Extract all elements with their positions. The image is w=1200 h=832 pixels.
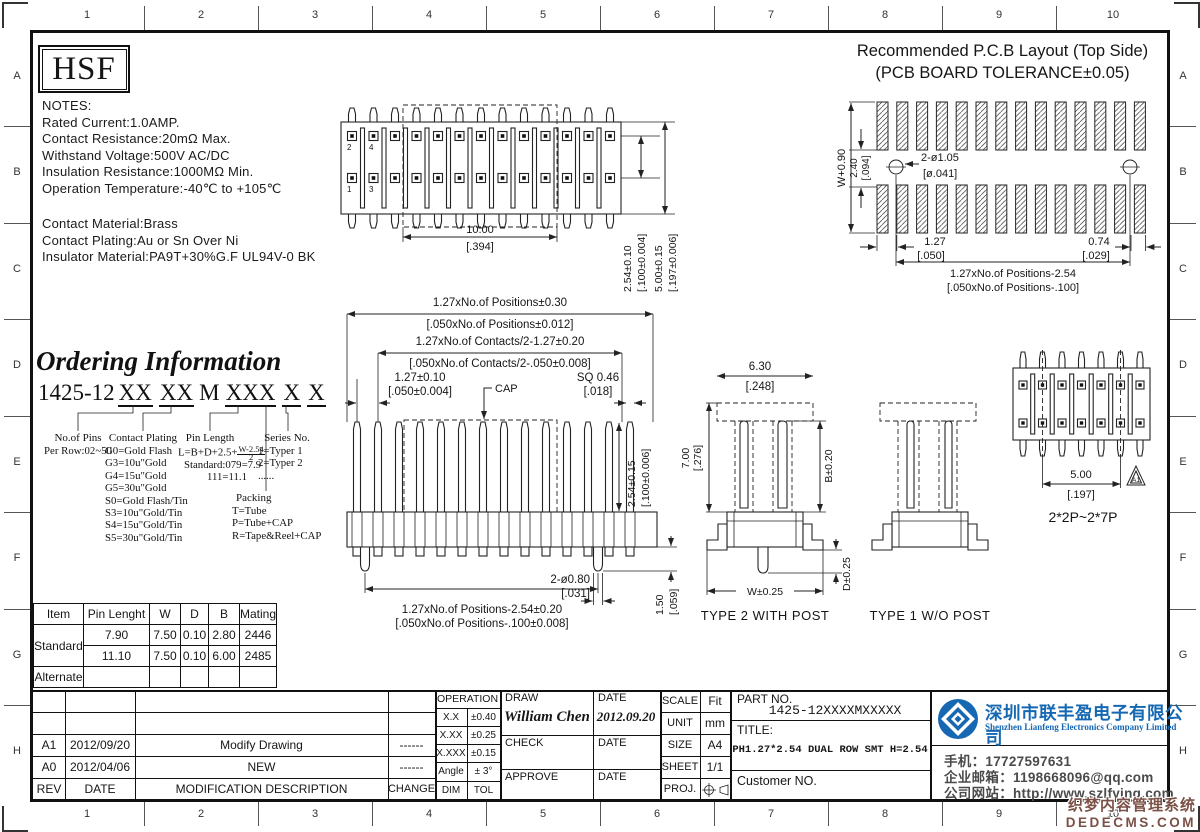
ordering-title: Ordering Information: [36, 346, 281, 377]
grid-row-label: F: [8, 552, 26, 564]
fv-cap-leader: [484, 388, 492, 419]
fv-dim-150-in: [.059]: [668, 589, 680, 615]
packing-option: P=Tube+CAP: [232, 517, 321, 529]
series-option: 1=Typer 1: [258, 445, 303, 457]
unit-value: mm: [700, 712, 730, 734]
t2-foot-left: [707, 524, 727, 550]
grid-row-label: G: [8, 649, 26, 661]
fv-dim-l1-in: [.050xNo.of Positions±0.012]: [427, 319, 574, 331]
grid-row-label: E: [1174, 456, 1192, 468]
part-group-pins: XX: [118, 380, 153, 407]
company-name-en: Shenzhen Lianfeng Electronics Company Li…: [985, 722, 1176, 732]
grid-row-label: C: [8, 263, 26, 275]
part-no-value: 1425-12XXXXMXXXXX: [745, 702, 925, 718]
note-line: Operation Temperature:-40℃ to +105℃: [42, 181, 281, 198]
grid-row-label: D: [8, 359, 26, 371]
spec-cell: [181, 667, 209, 688]
fv-dim-l2-in: [.050xNo.of Contacts/2-.050±0.008]: [409, 358, 590, 370]
top-view-dim-500: 5.00±0.15: [653, 245, 665, 292]
note-line: Insulation Resistance:1000MΩ Min.: [42, 164, 281, 181]
pcb-dim-240-in: [.094]: [861, 155, 872, 180]
title-label: TITLE:: [737, 723, 773, 737]
operation-header: OPERATION: [435, 690, 500, 708]
part-group-plating: XX: [159, 380, 194, 407]
proj-label: PROJ.: [660, 778, 700, 800]
tol-dim: X.XXX: [435, 744, 467, 762]
hsf-logo-text: HSF: [52, 51, 116, 88]
rev-id: A0: [33, 756, 65, 778]
grid-col-label: 1: [67, 9, 107, 21]
note-line: Contact Plating:Au or Sn Over Ni: [42, 233, 316, 250]
rev-change: ------: [388, 756, 435, 778]
grid-col-label: 1: [67, 808, 107, 820]
notes-block: NOTES: Rated Current:1.0AMP. Contact Res…: [42, 98, 281, 198]
sv-range-label: 2*2P~2*7P: [1049, 509, 1118, 525]
check-date-label: DATE: [598, 737, 627, 749]
grid-col-label: 10: [1093, 9, 1133, 21]
type1-label: TYPE 1 W/O POST: [870, 608, 991, 623]
grid-col-label: 8: [865, 9, 905, 21]
fv-post-left: [361, 547, 370, 571]
spec-row-label: Alternate: [34, 667, 84, 688]
spec-table: Item Pin Lenght W D B Mating Standard 7.…: [33, 603, 277, 688]
formula-prefix: L=B+D+2.5+: [178, 446, 237, 458]
ordering-pinlength-standard: Standard:079=7.9: [184, 459, 261, 471]
note-line: Contact Material:Brass: [42, 216, 316, 233]
check-label: CHECK: [505, 737, 544, 749]
spec-cell: 2446: [240, 625, 277, 646]
pin-number-1: 1: [347, 185, 352, 194]
customer-no-label: Customer NO.: [737, 774, 817, 788]
plating-option: G4=15u"Gold: [105, 470, 188, 482]
ordering-pinlength-111: 111=11.1: [207, 471, 247, 483]
part-group-m: M: [199, 380, 219, 405]
top-view-drawing: 2 4 1 3 10.00 [.394] 2.54±0.10 [.100±0.0…: [335, 92, 685, 297]
t1-cap-outline: [880, 403, 976, 512]
grid-row-label: B: [1174, 166, 1192, 178]
ordering-series-list: 1=Typer 1 2=Typer 2 ......: [258, 445, 303, 482]
spec-cell: 11.10: [84, 646, 150, 667]
fv-dim-hole-in: [.031]: [561, 588, 590, 600]
datasheet-page: 1 2 3 4 5 6 7 8 9 10 1 2 3 4 5 6 7 8 9 1…: [0, 0, 1200, 832]
grid-row-label: H: [8, 745, 26, 757]
ordering-packing-list: T=Tube P=Tube+CAP R=Tape&Reel+CAP: [232, 505, 321, 542]
tol-dim: Angle: [435, 762, 467, 781]
unit-label: UNIT: [660, 712, 700, 734]
part-group-length: XXX: [225, 380, 277, 407]
spec-cell: [84, 667, 150, 688]
note-line: Withstand Voltage:500V AC/DC: [42, 148, 281, 165]
t2-dim-630-in: [.248]: [746, 381, 775, 393]
fv-cap-label: CAP: [495, 383, 518, 395]
plating-option: G0=Gold Flash: [105, 445, 188, 457]
pcb-dim-edge: 0.74: [1088, 236, 1109, 248]
pcb-layout-subtitle: (PCB BOARD TOLERANCE±0.05): [840, 63, 1165, 83]
series-option: 2=Typer 2: [258, 457, 303, 469]
pcb-pad-row-bottom: [877, 185, 1145, 233]
fv-dim-hole: 2-ø0.80: [550, 574, 590, 586]
grid-col-label: 2: [181, 9, 221, 21]
grid-col-label: 3: [295, 808, 335, 820]
t2-dim-630: 6.30: [749, 361, 771, 373]
sv-dim-500: 5.00: [1070, 469, 1091, 481]
rev-description: NEW: [135, 756, 388, 778]
fv-dim-254-in: [.100±0.006]: [640, 449, 652, 507]
fv-dim-sq-in: [.018]: [584, 386, 613, 398]
plating-option: S0=Gold Flash/Tin: [105, 495, 188, 507]
company-logo-icon: [936, 697, 980, 741]
fv-dim-l3-in: [.050±0.004]: [388, 386, 452, 398]
pcb-dim-w: W+0.90: [836, 149, 848, 187]
pin-number-3: 3: [369, 185, 374, 194]
pcb-pad-row-top: [877, 102, 1145, 150]
ordering-plating-list: G0=Gold Flash G3=10u"Gold G4=15u"Gold G5…: [105, 445, 188, 544]
draw-date-value: 2012.09.20: [594, 703, 658, 731]
type1-drawing: TYPE 1 W/O POST: [865, 358, 1025, 628]
ordering-series-title: Series No.: [252, 432, 322, 444]
rev-header-change: CHANGE: [388, 778, 435, 800]
spec-cell: 0.10: [181, 625, 209, 646]
pcb-dim-pitch-in: [.050]: [917, 250, 945, 262]
grid-col-label: 3: [295, 9, 335, 21]
grid-col-label: 7: [751, 9, 791, 21]
t2-dim-700-in: [.276]: [692, 445, 704, 471]
fv-body: [347, 512, 657, 547]
grid-col-label: 5: [523, 9, 563, 21]
spec-cell: 0.10: [181, 646, 209, 667]
spec-header-cell: D: [181, 604, 209, 625]
t2-dim-w: W±0.25: [747, 586, 783, 598]
watermark-line2: DEDECMS.COM: [1000, 815, 1196, 830]
spec-cell: 7.90: [84, 625, 150, 646]
grid-row-label: A: [1174, 70, 1192, 82]
fv-smt-pads: [353, 547, 634, 556]
material-notes-block: Contact Material:Brass Contact Plating:A…: [42, 216, 316, 266]
corner-mark: [2, 2, 28, 28]
grid-col-label: 8: [865, 808, 905, 820]
approve-label: APPROVE: [505, 771, 558, 783]
ordering-part-format: 1425-12XXXXMXXXXX: [38, 380, 329, 406]
sheet-label: SHEET: [660, 756, 700, 778]
pcb-dim-holes: 2-ø1.05: [921, 152, 959, 164]
rev-id: A1: [33, 734, 65, 756]
part-group-series: X: [307, 380, 326, 407]
tol-val: ±0.40: [467, 708, 500, 726]
grid-row-label: G: [1174, 649, 1192, 661]
t1-body: [892, 512, 968, 547]
draw-signature: William Chen: [503, 703, 591, 731]
fv-dim-l2: 1.27xNo.of Contacts/2-1.27±0.20: [416, 336, 585, 348]
fv-dim-b1: 1.27xNo.of Positions-2.54±0.20: [402, 604, 562, 616]
grid-row-label: E: [8, 456, 26, 468]
pcb-layout-title: Recommended P.C.B Layout (Top Side): [840, 41, 1165, 61]
pcb-dim-edge-in: [.029]: [1082, 250, 1110, 262]
watermark: 织梦内容管理系统 DEDECMS.COM: [1000, 794, 1196, 830]
third-angle-projection-icon: [701, 781, 731, 799]
grid-col-label: 7: [751, 808, 791, 820]
spec-cell: [209, 667, 240, 688]
grid-col-label: 2: [181, 808, 221, 820]
scale-value: Fit: [700, 690, 730, 712]
rev-header-desc: MODIFICATION DESCRIPTION: [135, 778, 388, 800]
size-value: A4: [700, 734, 730, 756]
grid-row-label: D: [1174, 359, 1192, 371]
hsf-logo: HSF: [38, 45, 130, 93]
fv-post-right: [594, 547, 603, 571]
spec-header-cell: B: [209, 604, 240, 625]
note-line: Insulator Material:PA9T+30%G.F UL94V-0 B…: [42, 249, 316, 266]
grid-col-label: 9: [979, 9, 1019, 21]
t2-pins: [740, 421, 787, 508]
grid-col-label: 6: [637, 9, 677, 21]
spec-header-cell: Item: [34, 604, 84, 625]
spec-row-label: Standard: [34, 625, 84, 667]
t1-pins: [907, 421, 952, 508]
note-line: NOTES:: [42, 98, 281, 115]
spec-cell: [240, 667, 277, 688]
t2-dim-lines: [706, 403, 842, 595]
spec-cell: 2485: [240, 646, 277, 667]
title-value: PH1.27*2.54 DUAL ROW SMT H=2.54: [731, 742, 929, 758]
t2-dim-d: D±0.25: [841, 557, 853, 591]
top-view-dim-254: 2.54±0.10: [622, 245, 634, 292]
series-option: ......: [258, 470, 303, 482]
t1-foot-left: [872, 524, 892, 550]
small-top-view-drawing: 5.00 [.197] A1 2*2P~2*7P: [1005, 328, 1175, 540]
plating-option: S4=15u"Gold/Tin: [105, 519, 188, 531]
plating-option: G5=30u"Gold: [105, 482, 188, 494]
spec-cell: 2.80: [209, 625, 240, 646]
t2-cap-outline: [717, 403, 813, 512]
t2-dim-700: 7.00: [680, 448, 692, 469]
top-view-dim-500-in: [.197±0.006]: [667, 234, 679, 292]
part-prefix: 1425-12: [38, 380, 115, 405]
top-view-dim-10-in: [.394]: [466, 241, 494, 253]
grid-col-label: 6: [637, 808, 677, 820]
fv-dim-b1-in: [.050xNo.of Positions-.100±0.008]: [395, 618, 568, 630]
fv-pins: [354, 422, 634, 512]
fv-dim-254: 2.54±0.15: [626, 460, 638, 507]
top-view-dim-254-in: [.100±0.004]: [636, 234, 648, 292]
pcb-dim-pitch: 1.27: [924, 236, 945, 248]
pcb-dim-holes-in: [ø.041]: [923, 168, 957, 180]
t1-foot-right: [968, 524, 988, 550]
top-view-pins-top: [349, 108, 614, 122]
sheet-value: 1/1: [700, 756, 730, 778]
grid-col-label: 4: [409, 9, 449, 21]
tol-val: ±0.15: [467, 744, 500, 762]
plating-option: S3=10u"Gold/Tin: [105, 507, 188, 519]
fv-dim-150: 1.50: [654, 594, 666, 615]
rev-header-date: DATE: [65, 778, 135, 800]
rev-change: ------: [388, 734, 435, 756]
tol-dim: X.X: [435, 708, 467, 726]
pcb-dim-240: 2.40: [849, 158, 860, 178]
fv-dim-l1: 1.27xNo.of Positions±0.30: [433, 297, 567, 309]
top-view-dim-10: 10.00: [466, 224, 494, 236]
watermark-line1: 织梦内容管理系统: [1000, 794, 1196, 815]
type2-drawing: 6.30 [.248] 7.00 [.276]: [680, 358, 865, 628]
plating-option: S5=30u"Gold/Tin: [105, 532, 188, 544]
t2-body: [727, 512, 803, 547]
tol-val: ± 3°: [467, 762, 500, 781]
grid-row-label: B: [8, 166, 26, 178]
grid-row-label: C: [1174, 263, 1192, 275]
corner-mark: [1174, 2, 1200, 28]
t2-foot-right: [803, 524, 823, 550]
fv-dim-l3: 1.27±0.10: [394, 372, 445, 384]
plating-option: G3=10u"Gold: [105, 457, 188, 469]
part-group-packing: X: [282, 380, 301, 407]
rev-header-rev: REV: [33, 778, 65, 800]
scale-label: SCALE: [660, 690, 700, 712]
tol-dim: DIM: [435, 781, 467, 800]
pcb-layout-drawing: W+0.90 2.40 [.094] 2-ø1.05 [ø.041] 1.27 …: [835, 95, 1170, 295]
size-label: SIZE: [660, 734, 700, 756]
grid-col-label: 4: [409, 808, 449, 820]
spec-header-cell: Mating: [240, 604, 277, 625]
pin-number-4: 4: [369, 143, 374, 152]
note-line: Rated Current:1.0AMP.: [42, 115, 281, 132]
front-view-drawing: 1.27xNo.of Positions±0.30 [.050xNo.of Po…: [345, 295, 690, 635]
fv-dim-sq: SQ 0.46: [577, 372, 619, 384]
packing-option: T=Tube: [232, 505, 321, 517]
rev-date: 2012/04/06: [65, 756, 135, 778]
grid-row-label: F: [1174, 552, 1192, 564]
grid-row-label: A: [8, 70, 26, 82]
sv-dim-500-in: [.197]: [1067, 489, 1095, 501]
sv-pins-top: [1020, 352, 1143, 368]
spec-cell: 7.50: [150, 625, 181, 646]
packing-option: R=Tape&Reel+CAP: [232, 530, 321, 542]
grid-col-label: 5: [523, 808, 563, 820]
ordering-packing-title: Packing: [236, 492, 271, 504]
approve-date-label: DATE: [598, 771, 627, 783]
pcb-dim-span: 1.27xNo.of Positions-2.54: [950, 268, 1076, 280]
pcb-dim-span-in: [.050xNo.of Positions-.100]: [947, 282, 1079, 294]
ordering-pinlength-title: Pin Length: [165, 432, 255, 444]
tol-dim: X.XX: [435, 726, 467, 744]
spec-cell: 7.50: [150, 646, 181, 667]
t2-dim-b: B±0.20: [823, 449, 835, 482]
type2-label: TYPE 2 WITH POST: [701, 608, 830, 623]
sv-pins-bottom: [1020, 440, 1143, 456]
spec-header-cell: W: [150, 604, 181, 625]
corner-mark: [2, 806, 28, 832]
spec-header-cell: Pin Lenght: [84, 604, 150, 625]
spec-cell: 6.00: [209, 646, 240, 667]
pin-number-2: 2: [347, 143, 352, 152]
tol-val: TOL: [467, 781, 500, 800]
tol-val: ±0.25: [467, 726, 500, 744]
note-line: Contact Resistance:20mΩ Max.: [42, 131, 281, 148]
t2-post: [758, 547, 768, 573]
rev-date: 2012/09/20: [65, 734, 135, 756]
spec-cell: [150, 667, 181, 688]
sv-triangle-rev: A1: [1132, 477, 1140, 484]
rev-description: Modify Drawing: [135, 734, 388, 756]
